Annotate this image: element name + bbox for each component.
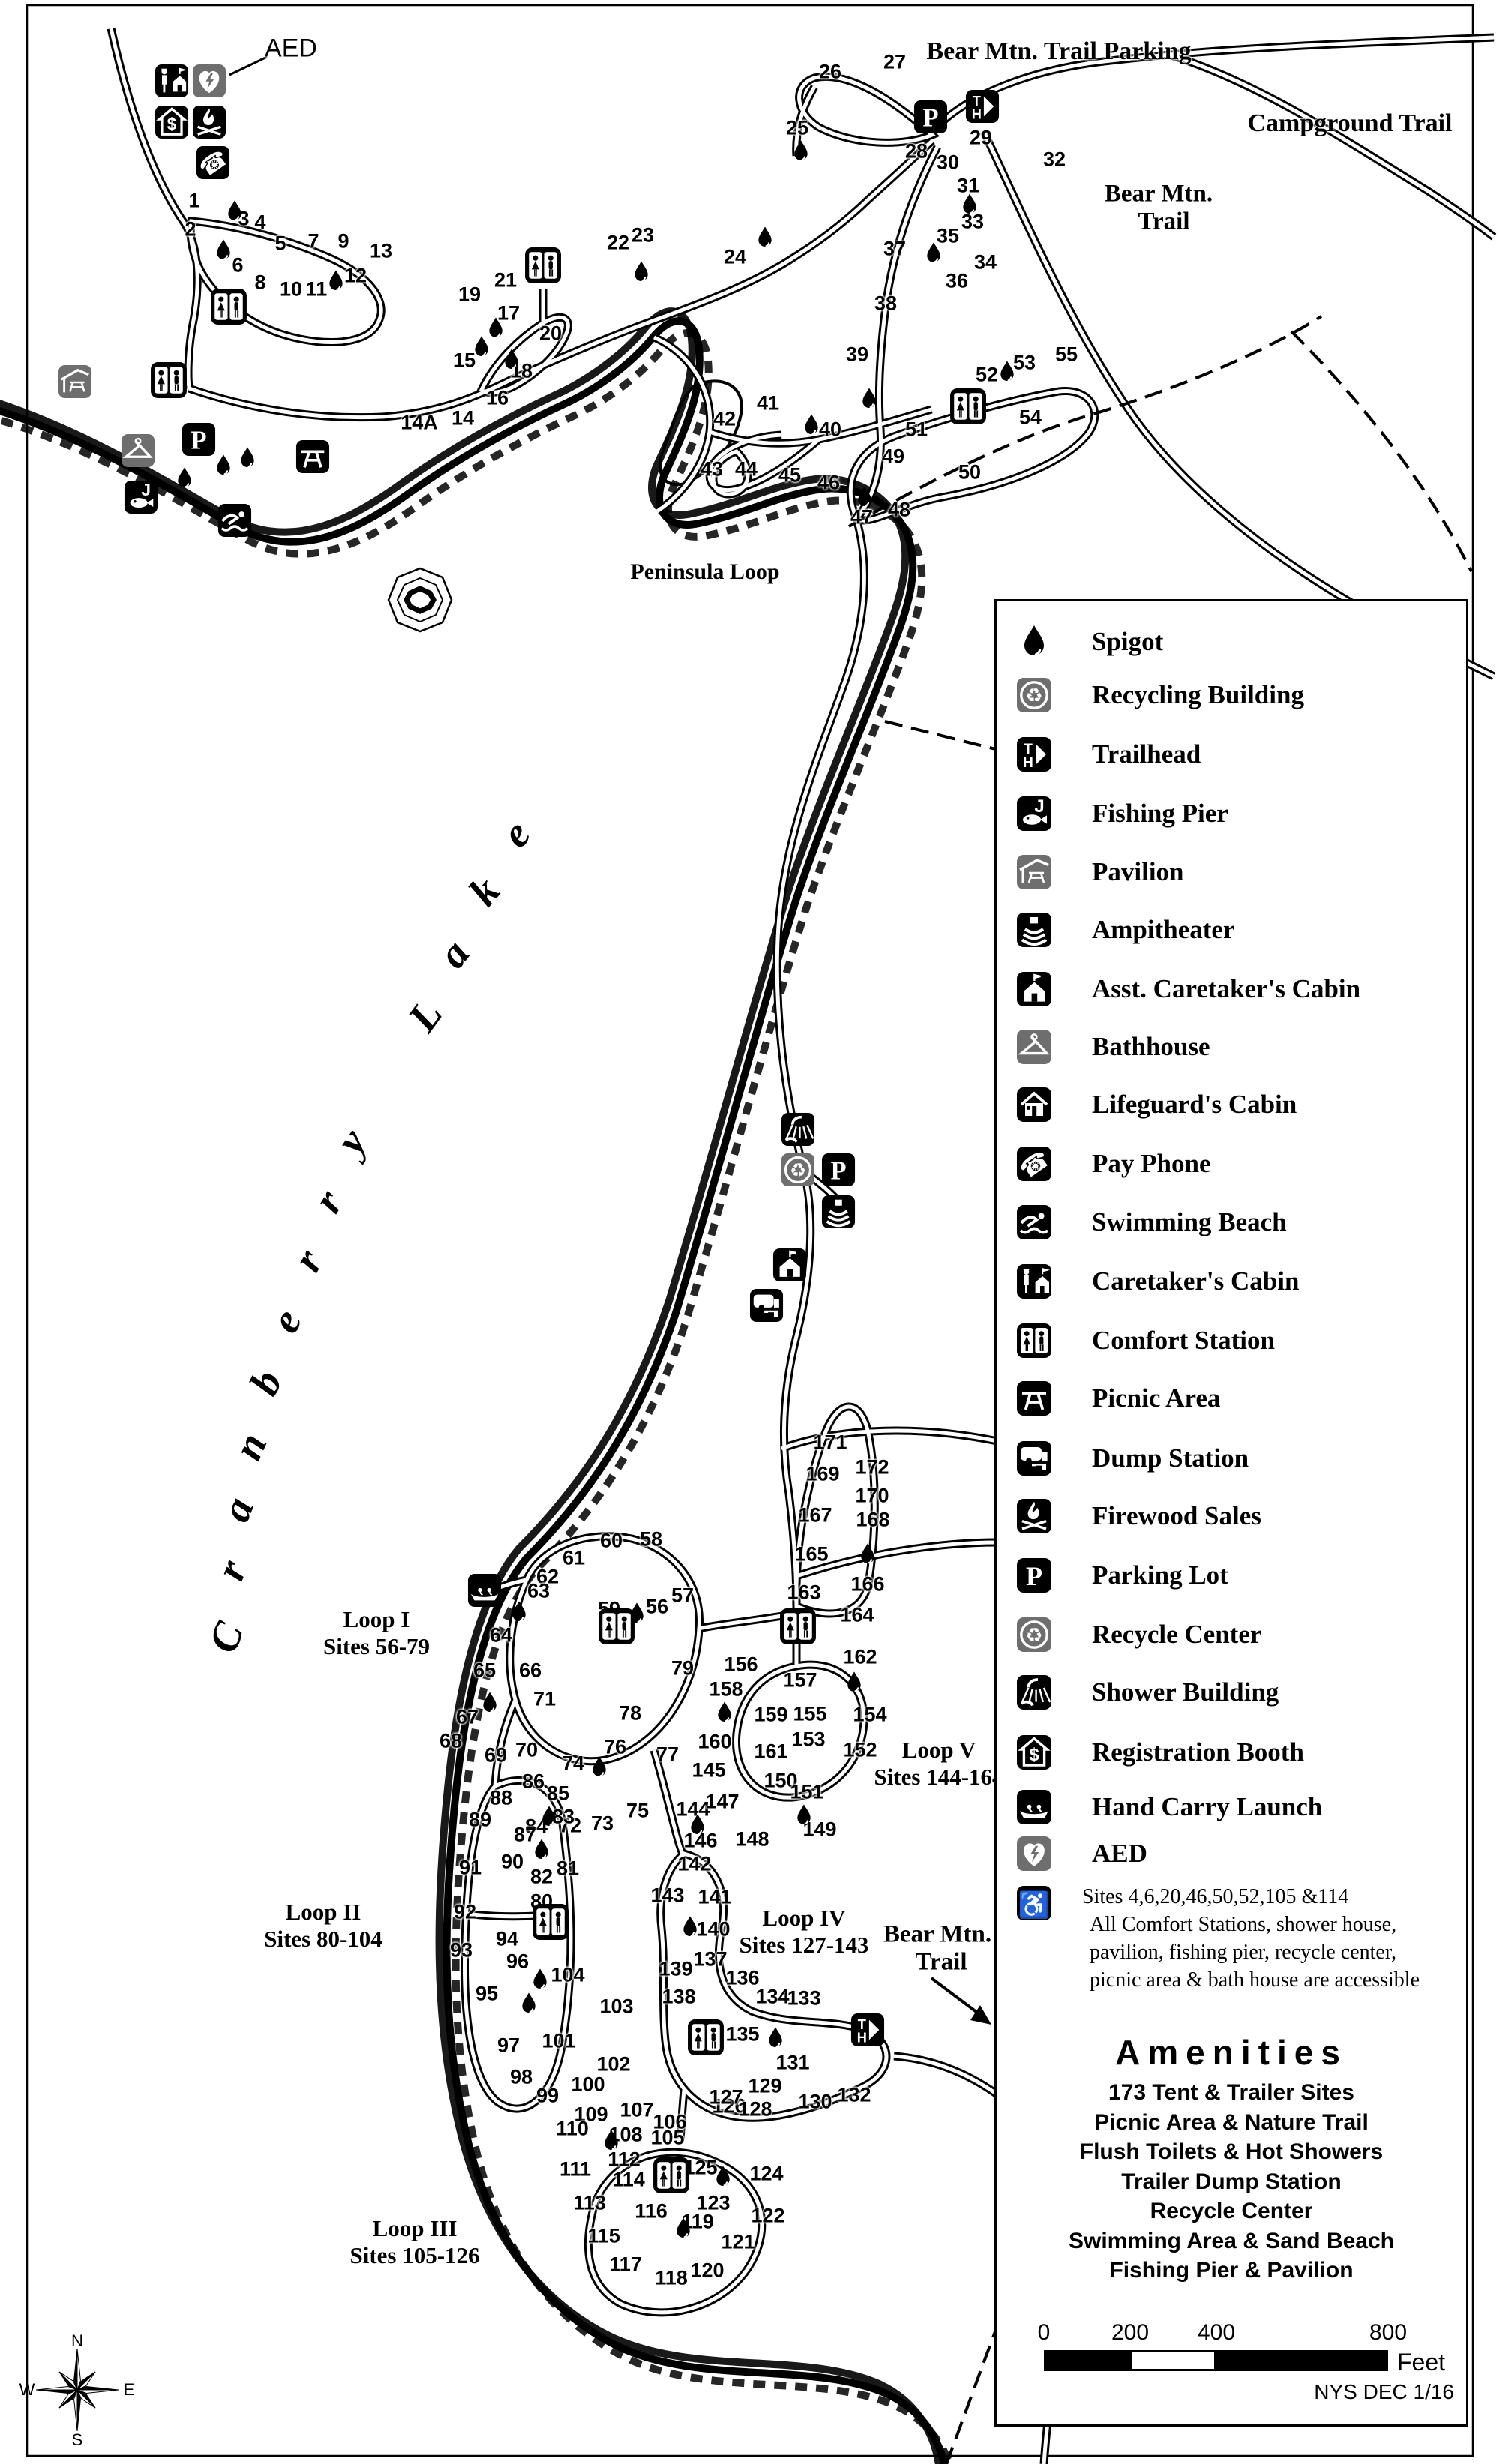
svg-text:♻: ♻ bbox=[790, 1161, 806, 1181]
spigot-icon bbox=[517, 1992, 541, 2016]
spigot-icon bbox=[857, 387, 881, 411]
legend-label: Pay Phone bbox=[1092, 1149, 1210, 1179]
comfort-icon bbox=[524, 247, 562, 284]
site-number-50: 50 bbox=[958, 461, 981, 484]
site-number-132: 132 bbox=[837, 2084, 871, 2107]
aed-icon bbox=[192, 64, 226, 98]
site-number-36: 36 bbox=[946, 270, 968, 293]
site-number-106: 106 bbox=[652, 2111, 686, 2134]
legend-row-registration-booth: $Registration Booth bbox=[997, 1733, 1466, 1772]
bathhouse-icon bbox=[121, 433, 155, 468]
recycle-icon: ♻ bbox=[1016, 1617, 1052, 1653]
site-number-86: 86 bbox=[522, 1770, 544, 1794]
legend-label: Comfort Station bbox=[1092, 1326, 1275, 1356]
amenity-line-5: Recycle Center bbox=[997, 2199, 1466, 2224]
site-number-147: 147 bbox=[705, 1791, 739, 1814]
site-number-97: 97 bbox=[497, 2034, 520, 2058]
site-number-37: 37 bbox=[883, 238, 906, 261]
site-number-94: 94 bbox=[496, 1928, 518, 1951]
site-number-139: 139 bbox=[658, 1958, 692, 1981]
spigot-icon bbox=[792, 1803, 816, 1827]
registration-icon: $ bbox=[1016, 1734, 1052, 1770]
spigot-icon bbox=[799, 413, 823, 437]
site-number-103: 103 bbox=[599, 1995, 633, 2019]
svg-text:P: P bbox=[1026, 1561, 1042, 1591]
loop-label-5: Loop VSites 144-164 bbox=[874, 1737, 1003, 1791]
amenity-line-1: 173 Tent & Trailer Sites bbox=[997, 2080, 1466, 2106]
spigot-icon bbox=[629, 260, 653, 284]
site-number-96: 96 bbox=[506, 1950, 529, 1974]
spigot-icon bbox=[995, 360, 1019, 384]
spigot-icon bbox=[235, 446, 259, 470]
spigot-icon bbox=[211, 238, 235, 262]
site-number-121: 121 bbox=[721, 2231, 754, 2254]
legend-row-pavilion: Pavilion bbox=[997, 853, 1466, 892]
site-number-9: 9 bbox=[337, 230, 349, 253]
spigot-icon bbox=[223, 199, 247, 223]
scale-tick-0: 0 bbox=[1038, 2320, 1051, 2346]
site-number-90: 90 bbox=[501, 1851, 523, 1874]
site-number-51: 51 bbox=[905, 418, 928, 442]
spigot-icon bbox=[842, 1671, 866, 1695]
site-number-99: 99 bbox=[536, 2085, 559, 2108]
trailhead-icon: TH bbox=[850, 2013, 885, 2047]
site-number-101: 101 bbox=[541, 2030, 575, 2053]
comfort-icon bbox=[1016, 1323, 1052, 1359]
pavilion-icon bbox=[58, 364, 92, 399]
hand-launch-icon bbox=[1016, 1789, 1052, 1825]
bear-mtn-trail-parking-label: Bear Mtn. Trail Parking bbox=[926, 37, 1191, 66]
trailhead-icon: TH bbox=[965, 89, 1000, 124]
site-number-68: 68 bbox=[439, 1730, 462, 1753]
amphitheater-icon bbox=[1016, 912, 1052, 948]
amenities-title: Amenities bbox=[997, 2032, 1466, 2073]
site-number-100: 100 bbox=[571, 2073, 604, 2097]
aed-icon bbox=[1016, 1836, 1052, 1872]
compass-e: E bbox=[124, 2380, 135, 2400]
lifeguard-cabin-icon bbox=[1016, 1087, 1052, 1123]
spigot-icon bbox=[671, 2217, 695, 2241]
site-number-120: 120 bbox=[690, 2259, 724, 2283]
payphone-icon: ☎ bbox=[196, 145, 230, 180]
caretaker-cabin-icon bbox=[154, 64, 189, 98]
site-number-20: 20 bbox=[539, 322, 562, 346]
site-number-66: 66 bbox=[519, 1659, 541, 1683]
svg-text:♻: ♻ bbox=[1025, 1625, 1042, 1647]
site-number-93: 93 bbox=[450, 1939, 472, 1962]
site-number-158: 158 bbox=[709, 1678, 742, 1701]
site-number-29: 29 bbox=[970, 127, 992, 150]
legend-row-caretaker-s-cabin: Caretaker's Cabin bbox=[997, 1262, 1466, 1301]
legend-row-pay-phone: ☎Pay Phone bbox=[997, 1144, 1466, 1183]
site-number-39: 39 bbox=[846, 343, 868, 367]
site-number-60: 60 bbox=[600, 1530, 622, 1553]
spigot-icon bbox=[763, 2026, 787, 2050]
legend-label: Trailhead bbox=[1092, 739, 1201, 769]
legend-row-dump-station: Dump Station bbox=[997, 1439, 1466, 1478]
legend-label: Recycling Building bbox=[1092, 680, 1304, 710]
legend-row-asst-caretaker-s-cabin: Asst. Caretaker's Cabin bbox=[997, 970, 1466, 1009]
site-number-21: 21 bbox=[494, 269, 517, 292]
site-number-88: 88 bbox=[490, 1787, 512, 1810]
spigot-icon bbox=[1016, 624, 1052, 660]
site-number-153: 153 bbox=[791, 1728, 825, 1752]
site-number-161: 161 bbox=[754, 1740, 787, 1764]
svg-text:♿: ♿ bbox=[1018, 1890, 1050, 1920]
recycle-icon: ♻ bbox=[1016, 677, 1052, 713]
comfort-icon bbox=[532, 1903, 569, 1941]
site-number-28: 28 bbox=[905, 140, 928, 163]
site-number-155: 155 bbox=[793, 1703, 826, 1726]
legend-label: Parking Lot bbox=[1092, 1560, 1228, 1590]
site-number-45: 45 bbox=[778, 464, 801, 487]
site-number-55: 55 bbox=[1055, 343, 1078, 367]
site-number-110: 110 bbox=[556, 2118, 589, 2141]
legend-row-spigot: Spigot bbox=[997, 622, 1466, 661]
site-number-89: 89 bbox=[469, 1809, 491, 1832]
site-number-22: 22 bbox=[607, 232, 629, 255]
scale-bar-segment bbox=[1216, 2350, 1389, 2371]
spigot-icon bbox=[587, 1755, 611, 1779]
spigot-icon bbox=[753, 226, 777, 250]
site-number-131: 131 bbox=[775, 2052, 809, 2075]
legend-row-comfort-station: Comfort Station bbox=[997, 1321, 1466, 1360]
swimming-icon bbox=[217, 503, 252, 538]
amenity-line-3: Flush Toilets & Hot Showers bbox=[997, 2139, 1466, 2165]
site-number-107: 107 bbox=[619, 2099, 653, 2122]
picnic-icon bbox=[1016, 1380, 1052, 1416]
site-number-10: 10 bbox=[280, 278, 302, 301]
site-number-25: 25 bbox=[786, 117, 808, 140]
site-number-137: 137 bbox=[693, 1948, 727, 1971]
site-number-82: 82 bbox=[530, 1866, 553, 1889]
legend-label: Swimming Beach bbox=[1092, 1207, 1287, 1237]
site-number-169: 169 bbox=[805, 1463, 839, 1486]
loop-name: Loop V bbox=[874, 1737, 1003, 1764]
spigot-icon bbox=[528, 1968, 552, 1992]
spigot-icon bbox=[678, 1915, 702, 1939]
bear-mtn-trail-upper-label-1: Bear Mtn. bbox=[1105, 181, 1213, 208]
comfort-icon bbox=[210, 288, 247, 325]
bear-mtn-trail-upper-label-2: Trail bbox=[1138, 208, 1189, 236]
legend-label: Lifeguard's Cabin bbox=[1092, 1090, 1297, 1120]
svg-text:J: J bbox=[141, 480, 151, 499]
site-number-69: 69 bbox=[484, 1744, 507, 1767]
legend-row-fishing-pier: JFishing Pier bbox=[997, 794, 1466, 833]
spigot-icon bbox=[499, 348, 523, 372]
scale-tick-800: 800 bbox=[1369, 2320, 1407, 2346]
site-number-164: 164 bbox=[840, 1604, 874, 1627]
site-number-170: 170 bbox=[855, 1485, 889, 1508]
comfort-icon bbox=[598, 1608, 635, 1645]
site-number-138: 138 bbox=[661, 1986, 695, 2009]
site-number-154: 154 bbox=[853, 1704, 886, 1727]
legend-row-ampitheater: Ampitheater bbox=[997, 910, 1466, 949]
site-number-48: 48 bbox=[888, 499, 910, 522]
site-number-168: 168 bbox=[856, 1509, 889, 1532]
site-number-65: 65 bbox=[473, 1659, 496, 1683]
legend-row-trailhead: THTrailhead bbox=[997, 735, 1466, 774]
legend-label: Ampitheater bbox=[1092, 915, 1235, 945]
site-number-148: 148 bbox=[735, 1828, 769, 1851]
amenity-line-4: Trailer Dump Station bbox=[997, 2169, 1466, 2195]
svg-text:$: $ bbox=[1029, 1745, 1039, 1765]
parking-icon: P bbox=[821, 1153, 856, 1187]
bathhouse-icon bbox=[1016, 1029, 1052, 1065]
legend-label: AED bbox=[1092, 1839, 1147, 1869]
site-number-143: 143 bbox=[650, 1884, 684, 1908]
site-number-30: 30 bbox=[937, 151, 959, 175]
spigot-icon bbox=[856, 1542, 880, 1566]
spigot-icon bbox=[789, 139, 813, 163]
site-number-1: 1 bbox=[188, 190, 199, 213]
legend-row-aed: AED bbox=[997, 1834, 1466, 1873]
picnic-icon bbox=[295, 439, 330, 474]
site-number-23: 23 bbox=[631, 224, 654, 247]
site-number-117: 117 bbox=[609, 2253, 642, 2277]
site-number-5: 5 bbox=[274, 232, 286, 256]
site-number-24: 24 bbox=[724, 246, 746, 269]
legend-label: Dump Station bbox=[1092, 1443, 1249, 1473]
trailhead-icon: TH bbox=[1016, 736, 1052, 772]
site-number-44: 44 bbox=[735, 458, 757, 481]
loop-sites-range: Sites 56-79 bbox=[323, 1633, 430, 1660]
site-number-8: 8 bbox=[254, 271, 265, 295]
spigot-icon bbox=[599, 2129, 623, 2153]
legend-label: Pavilion bbox=[1092, 857, 1184, 887]
bear-mtn-trail-lower-label-2: Trail bbox=[915, 1949, 967, 1977]
site-number-43: 43 bbox=[700, 458, 723, 481]
site-number-167: 167 bbox=[798, 1504, 832, 1527]
site-number-160: 160 bbox=[697, 1731, 731, 1754]
spigot-icon bbox=[685, 1813, 709, 1837]
bear-mtn-arrow bbox=[931, 1978, 991, 2025]
fishing-icon: J bbox=[1016, 796, 1052, 832]
loop-name: Loop II bbox=[264, 1899, 382, 1926]
site-number-172: 172 bbox=[855, 1456, 889, 1479]
legend-row-recycle-center: ♻Recycle Center bbox=[997, 1615, 1466, 1654]
scale-tick-400: 400 bbox=[1198, 2320, 1235, 2346]
site-number-81: 81 bbox=[556, 1857, 579, 1881]
spigot-icon bbox=[469, 335, 493, 359]
legend-label: Shower Building bbox=[1092, 1677, 1279, 1707]
site-number-115: 115 bbox=[587, 2225, 620, 2248]
loop-label-3: Loop IIISites 105-126 bbox=[349, 2215, 479, 2269]
comfort-icon bbox=[687, 2019, 724, 2056]
compass-s: S bbox=[72, 2430, 83, 2450]
spigot-icon bbox=[478, 1691, 502, 1715]
spigot-icon bbox=[958, 193, 982, 217]
compass-rose bbox=[36, 2349, 118, 2431]
comfort-icon bbox=[949, 388, 987, 425]
site-number-135: 135 bbox=[725, 2023, 759, 2046]
legend-label: Bathhouse bbox=[1092, 1032, 1210, 1062]
spigot-icon bbox=[211, 454, 235, 478]
site-number-114: 114 bbox=[612, 2169, 645, 2192]
site-number-156: 156 bbox=[724, 1653, 757, 1677]
asst-cabin-icon bbox=[1016, 971, 1052, 1007]
site-number-118: 118 bbox=[655, 2267, 688, 2290]
lake-shoreline bbox=[0, 311, 955, 2464]
legend-row-recycling-building: ♻Recycling Building bbox=[997, 676, 1466, 715]
bear-mtn-trail-lower-label-1: Bear Mtn. bbox=[883, 1921, 991, 1949]
loop-sites-range: Sites 127-143 bbox=[739, 1932, 868, 1959]
loop-sites-range: Sites 80-104 bbox=[264, 1926, 382, 1953]
svg-text:P: P bbox=[830, 1156, 846, 1185]
amenity-line-2: Picnic Area & Nature Trail bbox=[997, 2110, 1466, 2136]
svg-text:J: J bbox=[1034, 796, 1044, 817]
legend-row-parking-lot: PParking Lot bbox=[997, 1556, 1466, 1595]
site-number-151: 151 bbox=[790, 1781, 823, 1804]
site-number-102: 102 bbox=[596, 2053, 630, 2076]
site-number-14A: 14A bbox=[400, 412, 438, 435]
site-number-142: 142 bbox=[677, 1853, 711, 1876]
site-number-145: 145 bbox=[691, 1759, 725, 1782]
comfort-icon bbox=[150, 361, 187, 399]
site-number-128: 128 bbox=[738, 2098, 772, 2121]
spigot-icon bbox=[529, 1838, 553, 1862]
site-number-41: 41 bbox=[757, 392, 779, 415]
aed-leader-line bbox=[229, 57, 267, 75]
shower-icon bbox=[1016, 1674, 1052, 1710]
legend-label: Fishing Pier bbox=[1092, 799, 1228, 829]
loop-label-2: Loop IISites 80-104 bbox=[264, 1899, 382, 1953]
spigot-icon bbox=[507, 1600, 531, 1624]
site-number-123: 123 bbox=[696, 2192, 730, 2215]
svg-text:P: P bbox=[922, 103, 938, 132]
dump-icon bbox=[1016, 1440, 1052, 1476]
scale-unit-label: Feet bbox=[1397, 2349, 1445, 2376]
scale-tick-200: 200 bbox=[1111, 2320, 1149, 2346]
legend-label: Asst. Caretaker's Cabin bbox=[1092, 974, 1360, 1004]
site-number-78: 78 bbox=[619, 1702, 641, 1725]
caretaker-cabin-icon bbox=[1016, 1263, 1052, 1299]
registration-icon: $ bbox=[154, 105, 189, 139]
site-number-70: 70 bbox=[515, 1739, 538, 1762]
site-number-166: 166 bbox=[850, 1573, 884, 1596]
site-number-152: 152 bbox=[843, 1739, 877, 1762]
accessible-note-line-4: picnic area & bath house are accessible bbox=[1090, 1968, 1420, 1992]
map-credit: NYS DEC 1/16 bbox=[1229, 2380, 1454, 2404]
site-number-129: 129 bbox=[748, 2075, 781, 2098]
pond-contours bbox=[388, 568, 451, 631]
site-number-61: 61 bbox=[562, 1547, 585, 1570]
accessible-icon: ♿ bbox=[1016, 1885, 1052, 1921]
site-number-2: 2 bbox=[184, 218, 196, 241]
scale-bar-segment bbox=[1044, 2350, 1130, 2371]
scale-bar-segment bbox=[1130, 2350, 1216, 2371]
legend-row-bathhouse: Bathhouse bbox=[997, 1027, 1466, 1066]
loop-name: Loop III bbox=[349, 2215, 479, 2242]
loop-sites-range: Sites 105-126 bbox=[349, 2242, 479, 2269]
parking-icon: P bbox=[913, 100, 948, 134]
site-number-162: 162 bbox=[843, 1646, 877, 1669]
legend-label: Caretaker's Cabin bbox=[1092, 1266, 1299, 1296]
legend-label: Picnic Area bbox=[1092, 1383, 1220, 1413]
site-number-7: 7 bbox=[307, 230, 319, 253]
legend-label: Firewood Sales bbox=[1092, 1501, 1261, 1531]
legend-row-swimming-beach: Swimming Beach bbox=[997, 1203, 1466, 1242]
site-number-113: 113 bbox=[573, 2192, 606, 2215]
spigot-icon bbox=[711, 2165, 735, 2189]
hand-launch-icon bbox=[467, 1573, 502, 1608]
loop-name: Loop I bbox=[323, 1606, 430, 1633]
site-number-14: 14 bbox=[451, 407, 474, 430]
site-number-157: 157 bbox=[783, 1669, 817, 1692]
site-number-49: 49 bbox=[882, 445, 904, 469]
site-number-27: 27 bbox=[883, 51, 906, 74]
site-number-19: 19 bbox=[458, 283, 481, 307]
spigot-icon bbox=[537, 1805, 561, 1829]
legend-row-firewood-sales: Firewood Sales bbox=[997, 1497, 1466, 1536]
svg-text:$: $ bbox=[167, 115, 177, 134]
site-number-58: 58 bbox=[640, 1528, 662, 1551]
site-number-71: 71 bbox=[533, 1688, 556, 1711]
legend-label: Recycle Center bbox=[1092, 1620, 1261, 1650]
dump-icon bbox=[749, 1288, 784, 1323]
svg-text:P: P bbox=[190, 426, 206, 454]
site-number-95: 95 bbox=[475, 1983, 498, 2006]
site-number-92: 92 bbox=[454, 1901, 476, 1924]
accessible-note-line-3: pavilion, fishing pier, recycle center, bbox=[1090, 1941, 1396, 1965]
site-number-85: 85 bbox=[547, 1782, 569, 1806]
site-number-16: 16 bbox=[486, 387, 508, 410]
legend-row-hand-carry-launch: Hand Carry Launch bbox=[997, 1788, 1466, 1827]
svg-text:H: H bbox=[972, 106, 982, 121]
site-number-159: 159 bbox=[754, 1704, 787, 1727]
spigot-icon bbox=[853, 485, 877, 509]
site-number-4: 4 bbox=[254, 211, 265, 235]
site-number-34: 34 bbox=[974, 251, 997, 274]
site-number-98: 98 bbox=[510, 2066, 532, 2089]
legend-row-picnic-area: Picnic Area bbox=[997, 1379, 1466, 1418]
site-number-136: 136 bbox=[725, 1967, 759, 1990]
loop-label-1: Loop ISites 56-79 bbox=[323, 1606, 430, 1660]
site-number-57: 57 bbox=[671, 1584, 694, 1608]
parking-icon: P bbox=[181, 422, 216, 457]
parking-icon: P bbox=[1016, 1557, 1052, 1593]
amenity-line-6: Swimming Area & Sand Beach bbox=[997, 2229, 1466, 2254]
accessible-note-line-2: All Comfort Stations, shower house, bbox=[1090, 1913, 1396, 1937]
comfort-icon bbox=[652, 2157, 690, 2194]
svg-text:H: H bbox=[1023, 755, 1033, 771]
site-number-74: 74 bbox=[562, 1752, 584, 1776]
legend-row-lifeguard-s-cabin: Lifeguard's Cabin bbox=[997, 1085, 1466, 1124]
site-number-122: 122 bbox=[751, 2205, 784, 2228]
site-number-73: 73 bbox=[591, 1812, 613, 1836]
comfort-icon bbox=[779, 1608, 817, 1645]
compass-n: N bbox=[71, 2331, 83, 2351]
svg-text:♻: ♻ bbox=[1025, 685, 1042, 707]
spigot-icon bbox=[922, 241, 946, 265]
legend-panel: Spigot♻Recycling BuildingTHTrailheadJFis… bbox=[994, 599, 1468, 2427]
scale-bar bbox=[1044, 2350, 1388, 2371]
spigot-icon bbox=[712, 1701, 736, 1725]
svg-text:H: H bbox=[857, 2030, 867, 2045]
site-number-141: 141 bbox=[697, 1886, 731, 1909]
site-number-77: 77 bbox=[656, 1743, 679, 1767]
swimming-icon bbox=[1016, 1204, 1052, 1240]
compass-w: W bbox=[19, 2380, 35, 2400]
site-number-163: 163 bbox=[787, 1581, 820, 1605]
legend-label: Registration Booth bbox=[1092, 1737, 1304, 1767]
fishing-icon: J bbox=[124, 480, 158, 514]
site-number-42: 42 bbox=[713, 408, 736, 431]
campground-map: AED Bear Mtn. Trail Parking Campground T… bbox=[0, 0, 1500, 2464]
site-number-165: 165 bbox=[794, 1543, 828, 1566]
site-number-63: 63 bbox=[527, 1580, 550, 1603]
accessible-note-line-1: Sites 4,6,20,46,50,52,105 &114 bbox=[1082, 1885, 1348, 1909]
